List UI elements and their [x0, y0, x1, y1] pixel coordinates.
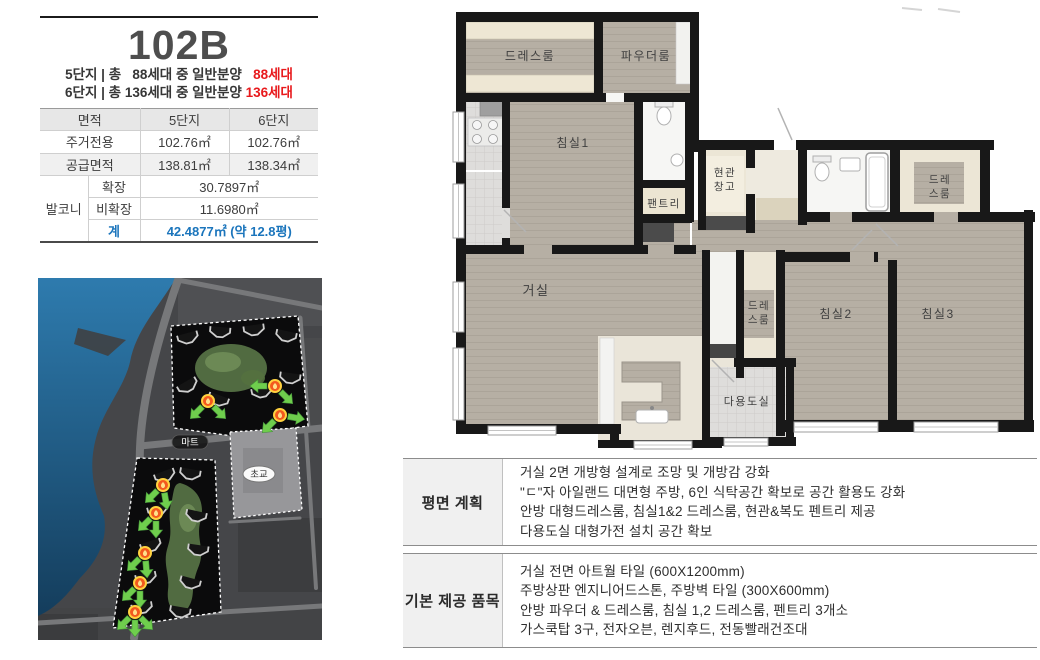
map-label-mart: 마트	[172, 435, 208, 449]
room-label-dressroom1: 드레스룸	[505, 49, 555, 63]
room-label-entry-storage-1: 현관	[714, 167, 736, 179]
notice-line-1-highlight: 88세대	[253, 67, 293, 82]
plan-summary-label: 평면 계획	[403, 459, 503, 545]
plan-line: 다용도실 대형가전 설치 공간 확보	[520, 522, 1037, 542]
balcony-label: 발코니	[40, 175, 88, 242]
map-label-school: 초교	[243, 466, 275, 482]
provided-items-label: 기본 제공 품목	[403, 554, 503, 647]
notice-line-2-highlight: 136세대	[246, 85, 293, 100]
row-exclusive-v6: 102.76㎡	[229, 131, 318, 153]
room-label-utility: 다용도실	[724, 395, 770, 408]
room-label-bedroom3: 침실3	[921, 307, 954, 321]
unit-type-title: 102B	[40, 22, 318, 69]
plan-summary-table: 평면 계획 거실 2면 개방형 설계로 조망 및 개방감 강화 "ㄷ"자 아일랜…	[403, 458, 1037, 546]
area-header-complex5: 5단지	[140, 109, 229, 131]
room-label-dress-tr-2: 스룸	[929, 188, 951, 200]
sales-notice: 5단지 | 총 88세대 중 일반분양 88세대 6단지 | 총 136세대 중…	[30, 66, 328, 102]
floorplan-drawing: 드레스룸 파우더룸 침실1 현관 창고 팬트리 드레 스룸 거실 드레 스룸 침…	[440, 0, 1040, 450]
floorplan-svg: 드레스룸 파우더룸 침실1 현관 창고 팬트리 드레 스룸 거실 드레 스룸 침…	[440, 0, 1040, 450]
row-supply-v5: 138.81㎡	[140, 153, 229, 175]
balcony-ext-label: 확장	[88, 175, 140, 197]
provide-line: 안방 파우더 & 드레스룸, 침실 1,2 드레스룸, 펜트리 3개소	[520, 601, 1037, 621]
top-divider	[40, 16, 318, 18]
room-label-entry-storage-2: 창고	[714, 181, 736, 193]
row-exclusive-v5: 102.76㎡	[140, 131, 229, 153]
table-row: 공급면적 138.81㎡ 138.34㎡	[40, 153, 318, 175]
balcony-nonext-value: 11.6980㎡	[140, 198, 318, 220]
area-table-header: 면적 5단지 6단지	[40, 109, 318, 131]
room-label-pantry: 팬트리	[647, 198, 680, 210]
row-supply-label: 공급면적	[40, 153, 140, 175]
mart-label-text: 마트	[181, 438, 199, 449]
room-label-bedroom1: 침실1	[556, 136, 589, 150]
provide-line: 가스쿡탑 3구, 전자오븐, 렌지후드, 전동빨래건조대	[520, 620, 1037, 640]
notice-line-2-text: 6단지 | 총 136세대 중 일반분양	[65, 85, 246, 100]
row-supply-v6: 138.34㎡	[229, 153, 318, 175]
room-label-powder: 파우더룸	[621, 49, 671, 63]
room-label-bedroom2: 침실2	[819, 307, 852, 321]
plan-line: 거실 2면 개방형 설계로 조망 및 개방감 강화	[520, 463, 1037, 483]
plan-line: "ㄷ"자 아일랜드 대면형 주방, 6인 식탁공간 확보로 공간 활용도 강화	[520, 483, 1037, 503]
balcony-nonext-label: 비확장	[88, 198, 140, 220]
plan-summary-body: 거실 2면 개방형 설계로 조망 및 개방감 강화 "ㄷ"자 아일랜드 대면형 …	[503, 459, 1037, 545]
notice-line-1-text: 5단지 | 총 88세대 중 일반분양	[65, 67, 253, 82]
table-row: 발코니 확장 30.7897㎡	[40, 175, 318, 197]
room-label-dress-mid-1: 드레	[748, 300, 770, 312]
site-location-map: 마트 초교	[38, 278, 322, 640]
school-label-text: 초교	[250, 470, 268, 481]
table-row: 주거전용 102.76㎡ 102.76㎡	[40, 131, 318, 153]
room-label-dress-tr-1: 드레	[929, 174, 951, 186]
notice-line-2: 6단지 | 총 136세대 중 일반분양 136세대	[30, 84, 328, 102]
site-map-svg: 마트 초교	[38, 278, 322, 640]
provided-items-body: 거실 전면 아트월 타일 (600X1200mm) 주방상판 엔지니어드스톤, …	[503, 554, 1037, 647]
notice-line-1: 5단지 | 총 88세대 중 일반분양 88세대	[30, 66, 328, 84]
page: 102B 5단지 | 총 88세대 중 일반분양 88세대 6단지 | 총 13…	[0, 0, 1040, 660]
provide-line: 주방상판 엔지니어드스톤, 주방벽 타일 (300X600mm)	[520, 581, 1037, 601]
balcony-total-value: 42.4877㎡ (약 12.8평)	[140, 220, 318, 242]
area-table: 면적 5단지 6단지 주거전용 102.76㎡ 102.76㎡ 공급면적 138…	[40, 108, 318, 243]
area-header-label: 면적	[40, 109, 140, 131]
room-label-living: 거실	[523, 283, 550, 298]
row-exclusive-label: 주거전용	[40, 131, 140, 153]
provided-items-table: 기본 제공 품목 거실 전면 아트월 타일 (600X1200mm) 주방상판 …	[403, 553, 1037, 648]
room-label-dress-mid-2: 스룸	[748, 314, 770, 326]
provide-line: 거실 전면 아트월 타일 (600X1200mm)	[520, 562, 1037, 582]
area-header-complex6: 6단지	[229, 109, 318, 131]
balcony-total-label: 계	[88, 220, 140, 242]
plan-line: 안방 대형드레스룸, 침실1&2 드레스룸, 현관&복도 펜트리 제공	[520, 502, 1037, 522]
balcony-ext-value: 30.7897㎡	[140, 175, 318, 197]
